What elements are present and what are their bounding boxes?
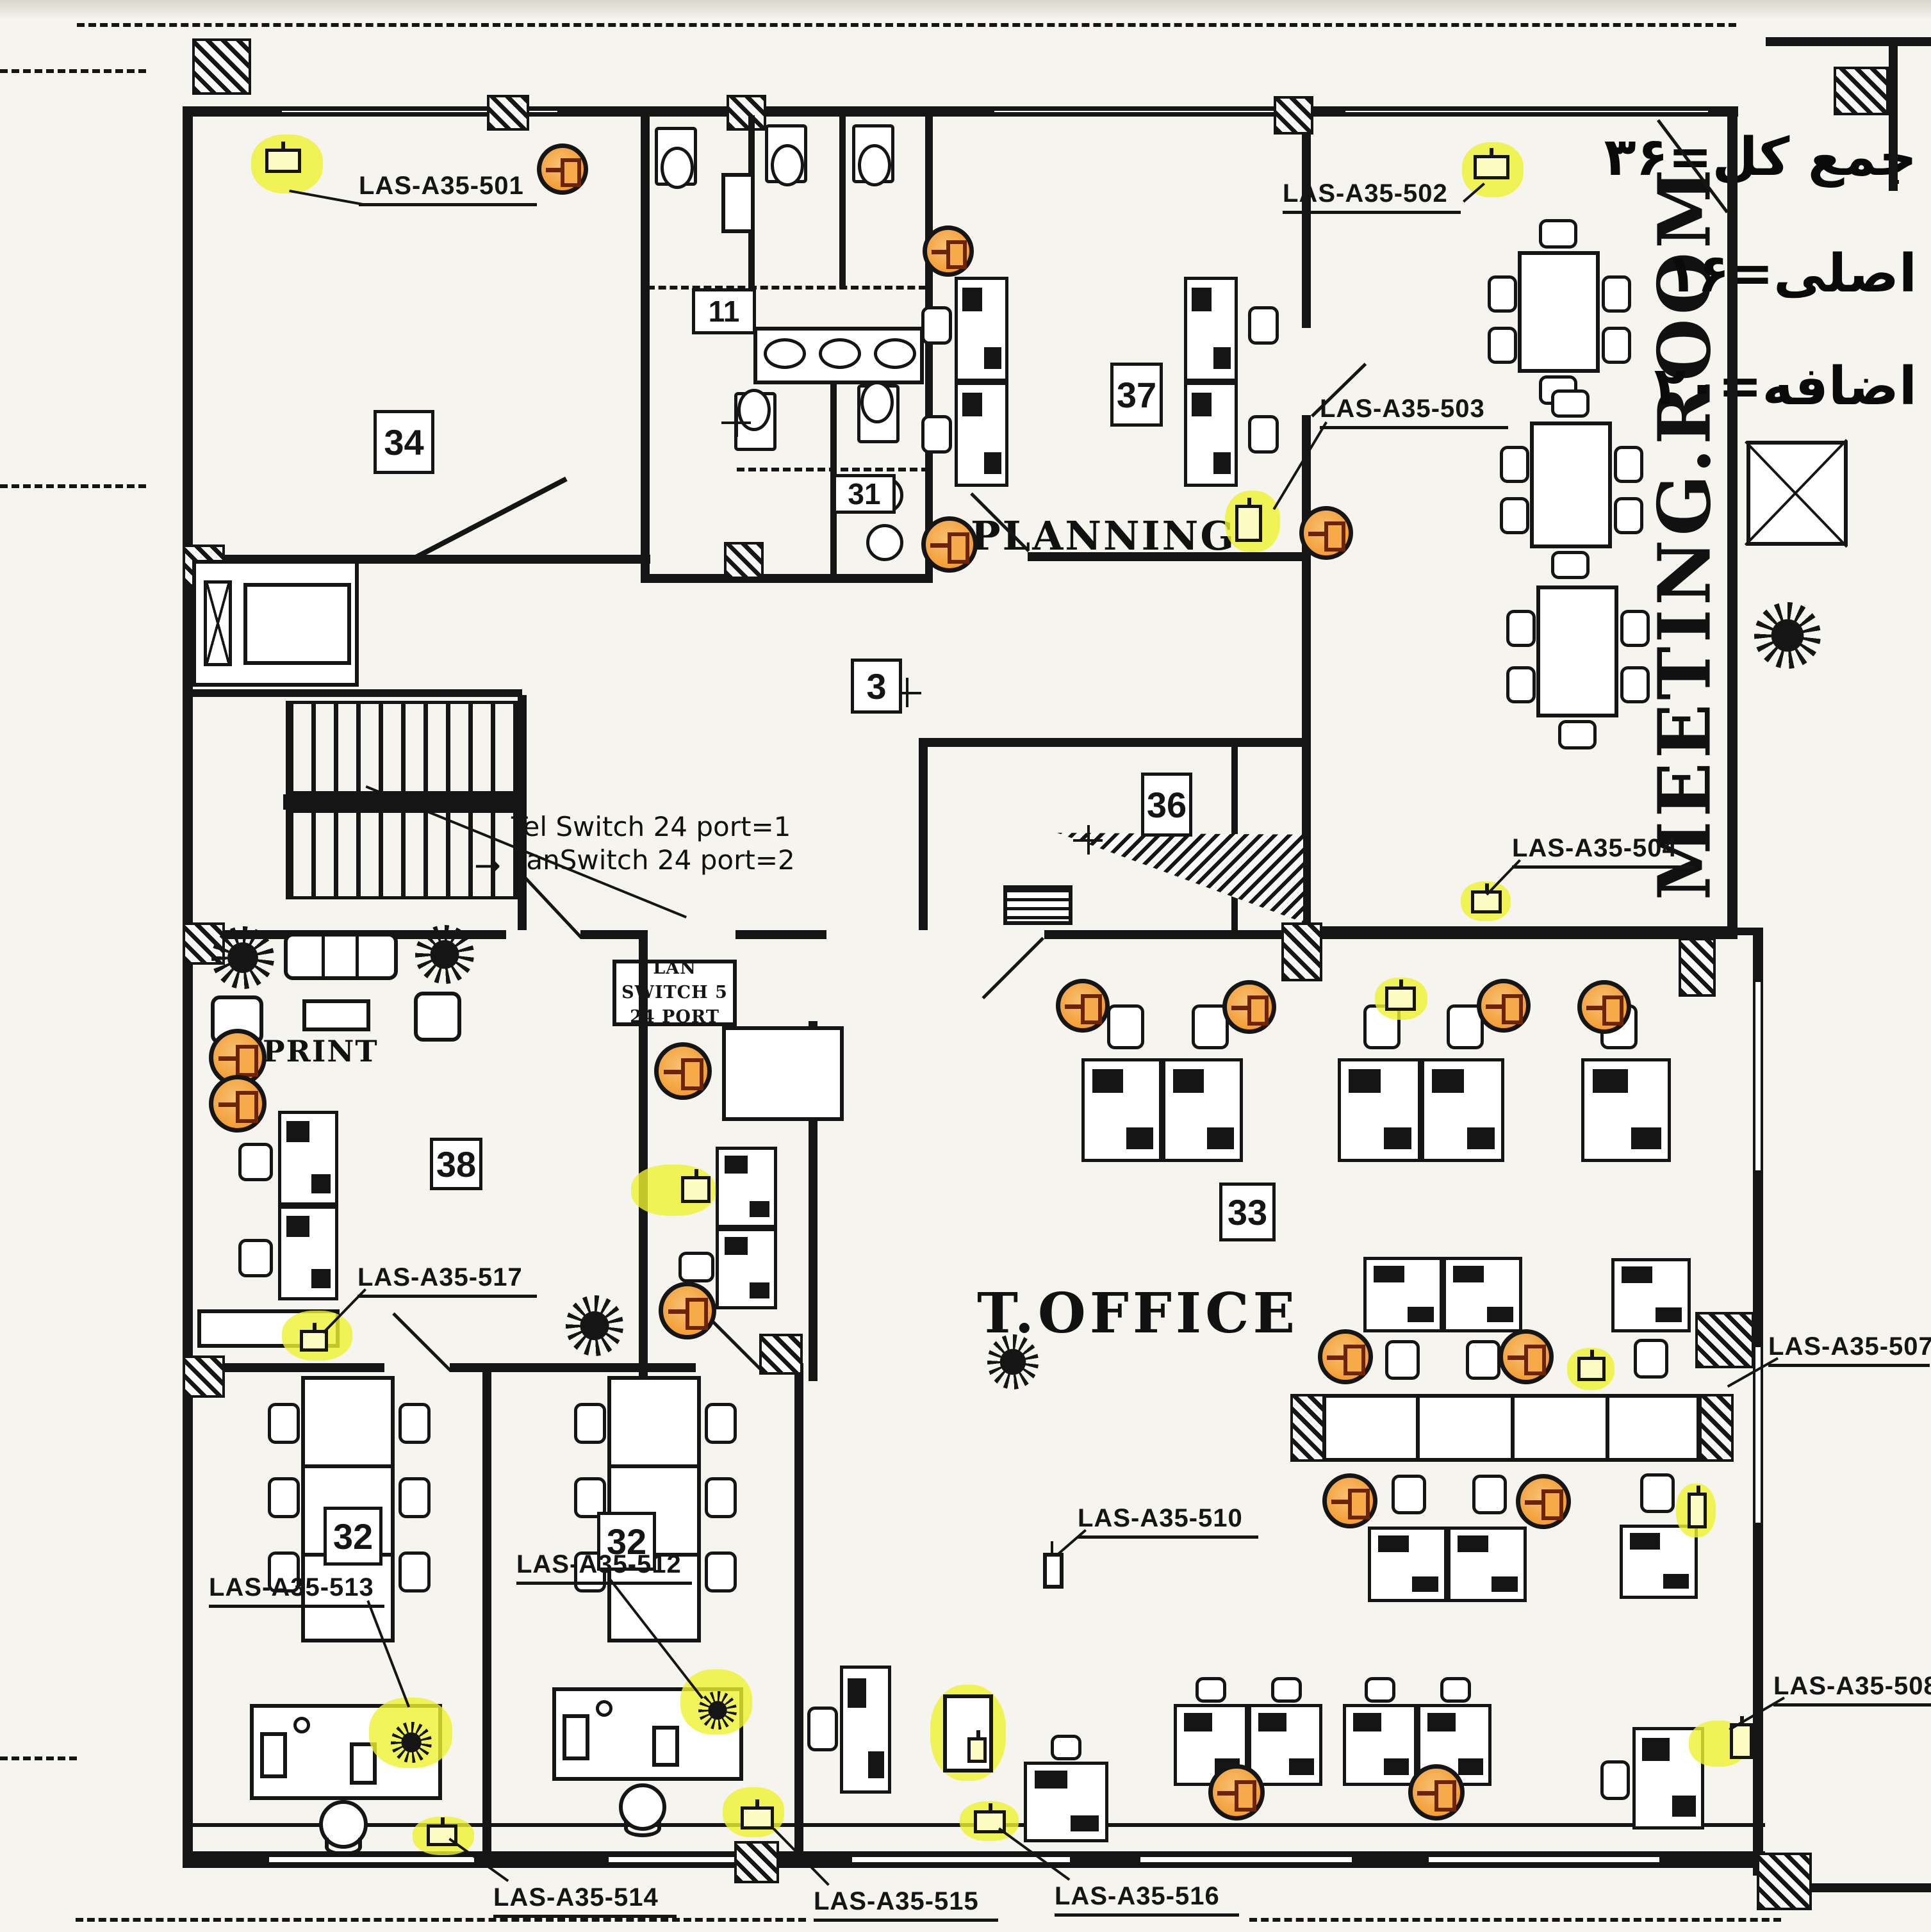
furniture-box xyxy=(260,1732,287,1778)
chair xyxy=(1602,275,1631,313)
toilet-icon xyxy=(655,127,697,186)
leader-line xyxy=(982,937,1044,999)
chair xyxy=(1620,666,1650,703)
window xyxy=(1429,1855,1659,1864)
network-outlet-orange-icon xyxy=(921,516,978,573)
chair xyxy=(238,1239,273,1277)
desk-with-computer xyxy=(1184,382,1238,487)
furniture-box xyxy=(607,1376,701,1642)
chair xyxy=(1500,497,1529,534)
elevator-shaft-icon xyxy=(204,580,232,666)
wall-opening xyxy=(506,930,580,939)
leader-line xyxy=(415,477,568,559)
room-name-t-office: T.OFFICE xyxy=(977,1281,1299,1346)
chair xyxy=(1051,1735,1081,1760)
desk-with-computer xyxy=(1081,1058,1162,1162)
chair xyxy=(1551,551,1590,579)
desk-with-computer xyxy=(716,1147,777,1228)
wall xyxy=(1606,1396,1609,1459)
furniture-box xyxy=(302,999,370,1031)
lan-switch-note: LanSwitch 24 port=2 xyxy=(511,844,795,876)
column-hatch-icon xyxy=(1281,922,1322,981)
chair xyxy=(921,306,952,345)
chair xyxy=(574,1403,606,1444)
office-chair xyxy=(619,1783,666,1831)
sink-icon xyxy=(764,338,806,369)
wall xyxy=(482,1363,491,1860)
column-hatch-icon xyxy=(1699,1394,1734,1462)
wall-opening xyxy=(826,930,1044,939)
port-label: LAS-A35-512 xyxy=(516,1550,692,1585)
column-hatch-icon xyxy=(192,38,251,95)
lan-switch-box-line1: LAN SWITCH 5 xyxy=(616,956,733,1005)
chair xyxy=(807,1707,838,1751)
desk-with-computer xyxy=(1248,1704,1322,1786)
tel-switch-note: Tel Switch 24 port=1 xyxy=(511,811,791,842)
port-label-leader xyxy=(1055,1529,1087,1557)
network-outlet-yellow-icon xyxy=(1235,505,1262,542)
network-outlet-orange-icon xyxy=(1577,980,1631,1034)
lan-switch-box: LAN SWITCH 5 24 PORT xyxy=(612,960,737,1026)
chair xyxy=(1640,1473,1675,1513)
port-label: LAS-A35-514 xyxy=(493,1883,677,1918)
chair xyxy=(238,1143,273,1181)
wall xyxy=(919,738,1311,747)
desk-with-computer xyxy=(840,1666,891,1794)
plant-icon xyxy=(698,1691,737,1730)
room-name-print-a: PRINT xyxy=(263,1034,379,1068)
sink-icon xyxy=(819,338,861,369)
desk-with-computer xyxy=(1581,1058,1671,1162)
column-hatch-icon xyxy=(487,95,529,131)
chair xyxy=(1600,1760,1630,1800)
room-number-38: 38 xyxy=(430,1138,482,1190)
plant-icon xyxy=(391,1722,432,1763)
room-number-32: 32 xyxy=(324,1507,382,1566)
desk-with-computer xyxy=(1368,1527,1447,1602)
grid-cross-icon xyxy=(1073,825,1103,855)
sink-icon xyxy=(866,524,903,561)
network-outlet-yellow-icon xyxy=(741,1806,774,1830)
furniture-box xyxy=(563,1714,589,1760)
wall xyxy=(794,1363,803,1860)
network-outlet-yellow-icon xyxy=(1577,1357,1606,1381)
sofa xyxy=(284,933,398,980)
chair xyxy=(1551,389,1590,418)
column-hatch-icon xyxy=(734,1841,779,1883)
window xyxy=(1345,109,1708,114)
toilet-icon xyxy=(765,124,807,183)
column-hatch-icon xyxy=(1679,938,1716,997)
chair xyxy=(268,1403,300,1444)
dashed-line xyxy=(0,69,146,73)
network-outlet-orange-icon xyxy=(537,143,588,195)
chair xyxy=(921,415,952,454)
chair xyxy=(1440,1677,1471,1703)
chair xyxy=(1248,306,1279,345)
network-outlet-yellow-icon xyxy=(265,149,301,173)
wall xyxy=(1511,1396,1515,1459)
plant-icon xyxy=(566,1295,623,1356)
dashed-line xyxy=(0,1756,77,1760)
dashed-line xyxy=(0,484,146,488)
network-outlet-orange-icon xyxy=(1499,1329,1554,1384)
wall xyxy=(641,115,650,583)
toilet-icon xyxy=(857,384,900,443)
wall xyxy=(611,1464,697,1468)
chair xyxy=(1500,446,1529,483)
column-hatch-icon xyxy=(183,1355,225,1398)
wall xyxy=(1889,37,1898,191)
chair xyxy=(1558,720,1597,749)
network-outlet-orange-icon xyxy=(1299,506,1353,560)
desk-with-computer xyxy=(1447,1527,1527,1602)
port-label: LAS-A35-515 xyxy=(814,1887,998,1922)
port-label-leader xyxy=(1273,422,1327,510)
wall xyxy=(183,689,522,697)
chair xyxy=(1385,1340,1420,1380)
furniture-box xyxy=(1530,422,1612,548)
furniture-box xyxy=(722,1026,844,1121)
column-hatch-icon xyxy=(759,1334,803,1375)
chair xyxy=(1602,327,1631,364)
chair xyxy=(1614,446,1643,483)
network-outlet-orange-icon xyxy=(1318,1329,1373,1384)
network-outlet-orange-icon xyxy=(209,1075,267,1133)
sink-icon xyxy=(293,1717,310,1733)
floor-plan-scan: PLANNING MEETING.ROOM T.OFFICE PRINT PRI… xyxy=(0,0,1931,1932)
column-hatch-icon xyxy=(1290,1394,1325,1462)
network-outlet-orange-icon xyxy=(659,1282,716,1339)
armchair xyxy=(414,992,461,1042)
plant-icon xyxy=(415,925,474,984)
stairs xyxy=(286,810,523,899)
desk-with-computer xyxy=(1443,1257,1522,1332)
furniture-box xyxy=(1043,1553,1064,1589)
port-label: LAS-A35-513 xyxy=(209,1573,384,1608)
kitchen-counter xyxy=(1003,885,1072,925)
chair xyxy=(1634,1339,1668,1379)
network-outlet-orange-icon xyxy=(1477,979,1531,1033)
room-number-3: 3 xyxy=(851,659,902,714)
chair xyxy=(1488,327,1517,364)
chair xyxy=(1539,219,1577,249)
chair xyxy=(1472,1475,1507,1514)
network-outlet-yellow-icon xyxy=(967,1737,987,1763)
column-hatch-icon xyxy=(1274,96,1313,135)
plant-icon xyxy=(1754,602,1821,669)
chair xyxy=(1614,497,1643,534)
chair xyxy=(1620,610,1650,647)
network-outlet-orange-icon xyxy=(1056,979,1110,1033)
chair xyxy=(705,1477,737,1518)
wall-opening xyxy=(384,1363,450,1372)
column-hatch-icon xyxy=(727,95,766,131)
wall xyxy=(1416,1396,1420,1459)
chair xyxy=(705,1403,737,1444)
chair xyxy=(1506,666,1536,703)
desk-with-computer xyxy=(1338,1058,1421,1162)
furniture-box xyxy=(652,1726,679,1767)
furniture-box xyxy=(1536,585,1618,717)
sink-icon xyxy=(596,1700,612,1717)
port-label-leader xyxy=(289,190,366,206)
desk-with-computer xyxy=(1611,1258,1691,1332)
chair xyxy=(1506,610,1536,647)
chair xyxy=(268,1477,300,1518)
desk-with-computer xyxy=(278,1206,338,1300)
furniture-box xyxy=(1518,251,1600,373)
desk-with-computer xyxy=(1620,1525,1698,1599)
wall-opening xyxy=(1302,328,1311,415)
port-label: LAS-A35-503 xyxy=(1320,395,1508,429)
sink-icon xyxy=(874,338,916,369)
chair xyxy=(399,1551,431,1592)
chair xyxy=(1466,1340,1500,1380)
chair xyxy=(1107,1004,1144,1049)
chair xyxy=(1488,275,1517,313)
network-outlet-yellow-icon xyxy=(1688,1493,1707,1528)
network-outlet-orange-icon xyxy=(654,1042,712,1100)
port-label: LAS-A35-501 xyxy=(359,172,537,206)
chair xyxy=(1271,1677,1302,1703)
network-outlet-yellow-icon xyxy=(1474,155,1509,179)
chair xyxy=(399,1477,431,1518)
chair xyxy=(1248,415,1279,454)
chair xyxy=(1365,1677,1395,1703)
port-label: LAS-A35-502 xyxy=(1283,179,1461,214)
desk-with-computer xyxy=(1421,1058,1504,1162)
plant-icon xyxy=(211,926,274,989)
network-outlet-orange-icon xyxy=(923,225,974,277)
wall xyxy=(183,106,193,1867)
column-hatch-icon xyxy=(1695,1312,1754,1368)
desk-with-computer xyxy=(1162,1058,1243,1162)
room-number-33: 33 xyxy=(1219,1183,1276,1241)
room-number-36: 36 xyxy=(1141,773,1192,837)
network-outlet-orange-icon xyxy=(1322,1473,1377,1528)
wall xyxy=(305,1464,391,1468)
network-outlet-orange-icon xyxy=(1408,1764,1465,1821)
chair xyxy=(1196,1677,1226,1703)
port-label: LAS-A35-516 xyxy=(1055,1882,1239,1917)
persian-extra-note: اضافه=۲۰ xyxy=(1685,356,1917,417)
wall xyxy=(1812,1883,1931,1892)
room-number-11: 11 xyxy=(692,288,756,334)
chair xyxy=(705,1551,737,1592)
window xyxy=(1140,1855,1352,1864)
port-label: LAS-A35-510 xyxy=(1078,1504,1258,1539)
plant-icon xyxy=(987,1334,1039,1389)
wall xyxy=(1766,37,1931,46)
desk-with-computer xyxy=(1024,1762,1108,1842)
desk-with-computer xyxy=(1343,1704,1417,1786)
chair xyxy=(399,1403,431,1444)
network-outlet-orange-icon xyxy=(1222,980,1276,1034)
wall xyxy=(925,115,933,583)
window xyxy=(269,1855,474,1864)
wall xyxy=(839,115,846,288)
toilet-icon xyxy=(852,124,894,183)
port-label: LAS-A35-508 xyxy=(1773,1672,1931,1707)
wall xyxy=(1727,106,1738,937)
dashed-line xyxy=(1249,1918,1781,1922)
furniture-box xyxy=(243,583,351,665)
dashed-line xyxy=(647,286,926,290)
dashed-line xyxy=(77,23,1736,27)
network-outlet-orange-icon xyxy=(1208,1764,1265,1821)
wall-opening xyxy=(696,1363,761,1372)
leader-line xyxy=(1051,1541,1053,1553)
network-outlet-yellow-icon xyxy=(1385,986,1416,1011)
wall xyxy=(919,738,928,934)
column-hatch-icon xyxy=(1757,1853,1812,1910)
chair xyxy=(1392,1475,1426,1514)
column-hatch-icon xyxy=(1834,67,1889,115)
wall xyxy=(639,930,648,1381)
port-label: LAS-A35-517 xyxy=(357,1263,537,1298)
port-label: LAS-A35-507 xyxy=(1768,1332,1930,1367)
desk-with-computer xyxy=(955,382,1008,487)
desk-with-computer xyxy=(278,1111,338,1206)
window xyxy=(1755,980,1761,1172)
chair xyxy=(678,1252,714,1282)
network-outlet-orange-icon xyxy=(1516,1474,1571,1529)
port-label: LAS-A35-504 xyxy=(1512,834,1694,869)
wall xyxy=(641,574,933,583)
stairs xyxy=(286,701,523,794)
network-outlet-yellow-icon xyxy=(681,1176,711,1203)
desk-with-computer xyxy=(716,1228,777,1309)
desk-with-computer xyxy=(955,277,1008,382)
window xyxy=(1755,1345,1761,1525)
window xyxy=(994,109,1286,114)
room-number-37: 37 xyxy=(1110,363,1163,427)
room-number-31: 31 xyxy=(833,474,896,514)
persian-total-note: جمع کل=۳۶ xyxy=(1679,127,1917,188)
desk-with-computer xyxy=(1184,277,1238,382)
dashed-line xyxy=(76,1918,806,1922)
column-hatch-icon xyxy=(724,542,764,579)
room-number-34: 34 xyxy=(374,410,434,474)
grid-cross-icon xyxy=(721,407,751,437)
desk-with-computer xyxy=(1363,1257,1443,1332)
furniture-box xyxy=(721,173,755,233)
office-chair xyxy=(319,1800,368,1849)
